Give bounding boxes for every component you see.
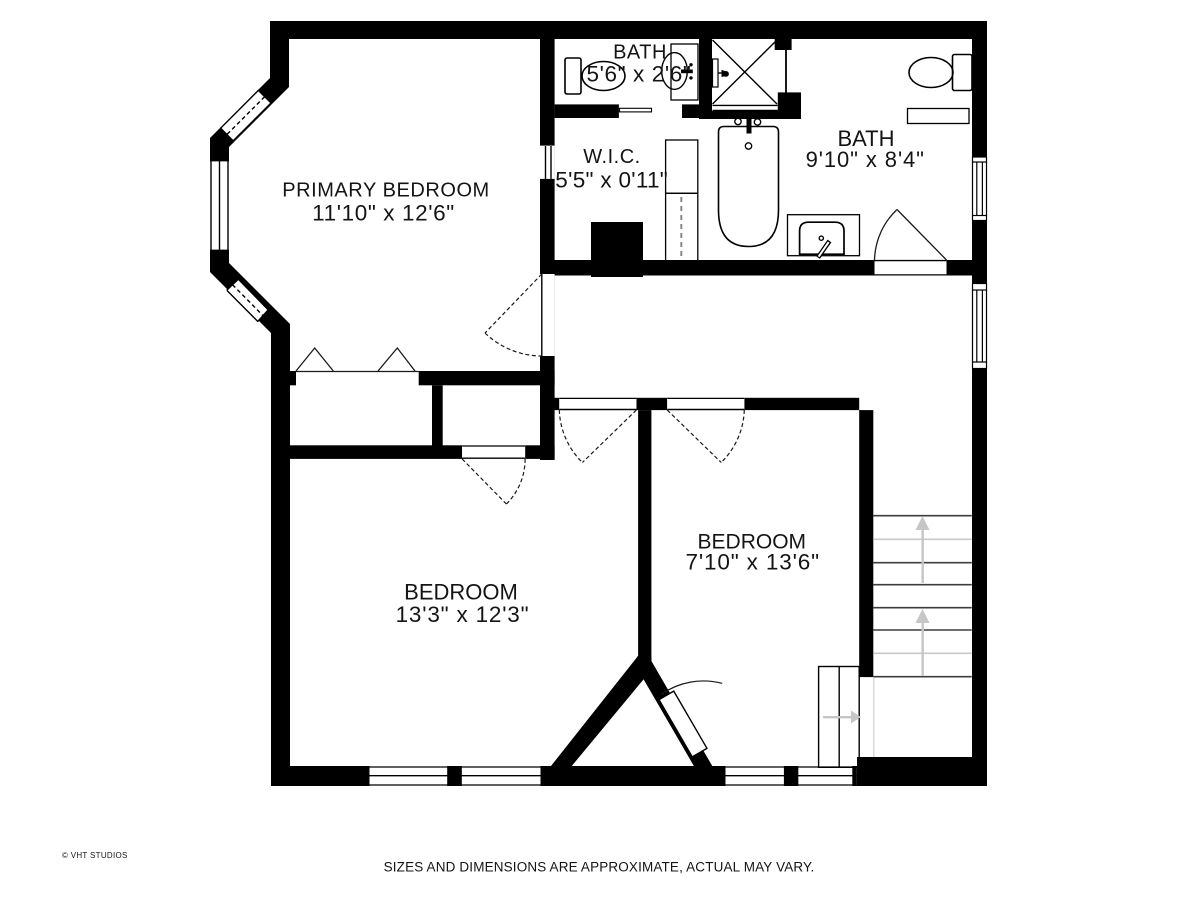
svg-text:9'10" x 8'4": 9'10" x 8'4" <box>806 147 925 172</box>
svg-text:W.I.C.: W.I.C. <box>583 146 640 168</box>
svg-text:© VHT STUDIOS: © VHT STUDIOS <box>62 851 128 860</box>
svg-text:PRIMARY BEDROOM: PRIMARY BEDROOM <box>282 180 490 202</box>
svg-text:BEDROOM: BEDROOM <box>404 580 518 605</box>
svg-text:11'10" x 12'6": 11'10" x 12'6" <box>312 201 455 226</box>
svg-text:5'6" x 2'6": 5'6" x 2'6" <box>587 62 692 87</box>
svg-text:7'10" x 13'6": 7'10" x 13'6" <box>685 550 819 575</box>
svg-text:BATH: BATH <box>613 42 667 64</box>
svg-text:5'5" x 0'11": 5'5" x 0'11" <box>555 168 668 193</box>
svg-text:13'3" x 12'3": 13'3" x 12'3" <box>396 602 530 627</box>
svg-text:SIZES AND DIMENSIONS ARE APPRO: SIZES AND DIMENSIONS ARE APPROXIMATE, AC… <box>384 860 815 875</box>
